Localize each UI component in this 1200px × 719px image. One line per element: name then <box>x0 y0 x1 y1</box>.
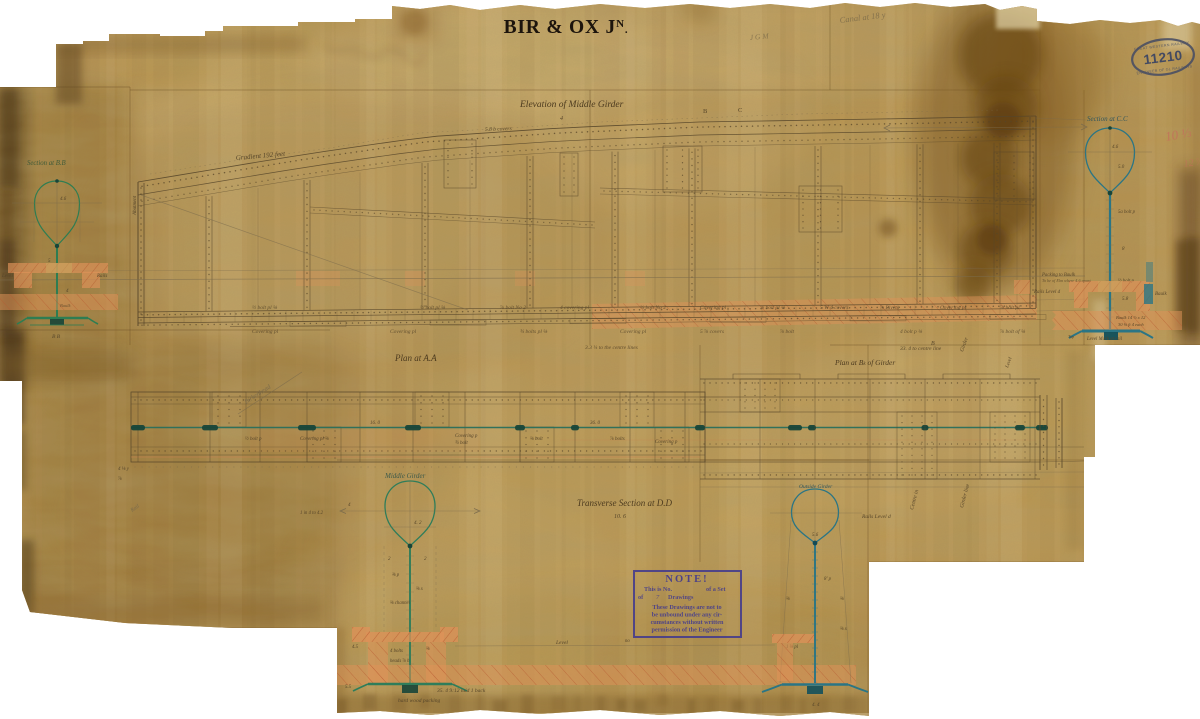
svg-text:16. 0: 16. 0 <box>370 421 381 426</box>
svg-text:4. 2: 4. 2 <box>414 521 422 526</box>
svg-text:5.8: 5.8 <box>1122 297 1129 302</box>
svg-text:4: 4 <box>560 115 563 122</box>
svg-text:5.0: 5.0 <box>1118 165 1125 170</box>
svg-text:½ bolt pl ⅝: ½ bolt pl ⅝ <box>420 304 445 311</box>
svg-text:Level: Level <box>555 640 568 646</box>
svg-text:Covering pl: Covering pl <box>940 305 967 311</box>
svg-text:J G Mat depotDrwg No 3: J G Mat depotDrwg No 3 <box>749 31 769 42</box>
svg-text:Baulk 14 ½ x 12: Baulk 14 ½ x 12 <box>1116 315 1146 320</box>
svg-text:12 ⅞: 12 ⅞ <box>1183 156 1200 170</box>
svg-text:⅜ p: ⅜ p <box>392 573 400 578</box>
svg-text:⅝ x: ⅝ x <box>840 627 848 632</box>
svg-text:Rails Level d: Rails Level d <box>861 514 891 520</box>
svg-text:Top: Top <box>1068 334 1074 339</box>
svg-text:4 bolts: 4 bolts <box>390 649 403 654</box>
svg-text:30 ⅜ ft 4 each: 30 ⅜ ft 4 each <box>1118 322 1144 327</box>
svg-text:⅞ bolts: ⅞ bolts <box>610 437 625 442</box>
svg-text:Baulk: Baulk <box>60 303 71 308</box>
svg-text:½ bolt No 2: ½ bolt No 2 <box>640 304 666 311</box>
svg-text:5.6: 5.6 <box>812 533 819 538</box>
svg-text:Covering pl: Covering pl <box>390 329 417 335</box>
svg-text:⅞: ⅞ <box>118 477 122 482</box>
svg-text:1 in 4 to 4.2: 1 in 4 to 4.2 <box>300 511 324 516</box>
svg-text:⅞ bolt of ⅝: ⅞ bolt of ⅝ <box>1000 328 1025 335</box>
svg-text:4 bolt p ⅛: 4 bolt p ⅛ <box>900 328 922 335</box>
svg-text:Elevation of Middle Girder: Elevation of Middle Girder <box>519 99 624 110</box>
svg-text:Level Mark at rail: Level Mark at rail <box>1086 337 1123 342</box>
svg-text:Covering p: Covering p <box>455 434 478 439</box>
svg-text:C: C <box>738 107 742 114</box>
svg-text:⅞ bolt pl ⅝: ⅞ bolt pl ⅝ <box>760 305 785 311</box>
svg-text:5 W 4 covers: 5 W 4 covers <box>820 304 849 311</box>
svg-text:heads ⅞ h: heads ⅞ h <box>390 659 410 664</box>
svg-text:36. 0: 36. 0 <box>590 421 601 426</box>
svg-text:be unbound under any cir-: be unbound under any cir- <box>652 612 723 619</box>
svg-text:4.6: 4.6 <box>60 197 67 202</box>
svg-text:¾ bolts pl ⅝: ¾ bolts pl ⅝ <box>520 329 547 335</box>
svg-text:B: B <box>703 108 708 115</box>
svg-text:3.3 ¼ to the centre lines: 3.3 ¼ to the centre lines <box>584 345 638 351</box>
svg-text:4.5: 4.5 <box>352 645 359 650</box>
svg-text:Abutment: Abutment <box>133 195 138 216</box>
svg-text:35. 4 9:12 laid 1 back: 35. 4 9:12 laid 1 back <box>436 687 486 694</box>
svg-text:NOTE!: NOTE! <box>665 574 708 585</box>
svg-text:4.6: 4.6 <box>1112 145 1119 150</box>
svg-text:⅝ channel: ⅝ channel <box>390 601 411 606</box>
svg-text:⅝ bolt: ⅝ bolt <box>530 437 543 442</box>
svg-text:4 ⅛ y: 4 ⅛ y <box>118 467 130 472</box>
svg-text:Drawings: Drawings <box>668 594 694 601</box>
svg-text:cumstances without written: cumstances without written <box>651 619 724 626</box>
svg-text:33. 4 to centre line: 33. 4 to centre line <box>899 345 942 352</box>
svg-text:Middle Girder: Middle Girder <box>384 472 426 480</box>
svg-text:Covering pl: Covering pl <box>700 305 727 311</box>
svg-text:⅝: ⅝ <box>840 597 844 602</box>
svg-text:¾ bolt: ¾ bolt <box>455 441 468 446</box>
svg-text:Section at B.B: Section at B.B <box>27 160 66 167</box>
svg-text:5.8 b covers: 5.8 b covers <box>485 126 512 133</box>
svg-text:⅝: ⅝ <box>426 647 430 652</box>
svg-text:Rails: Rails <box>96 274 107 279</box>
svg-text:4. 4: 4. 4 <box>812 703 820 708</box>
svg-text:5 ⅞ covers: 5 ⅞ covers <box>700 329 724 335</box>
svg-text:Rails Level d: Rails Level d <box>1033 290 1061 295</box>
svg-text:hard wood packing: hard wood packing <box>398 698 441 704</box>
svg-text:Covering p: Covering p <box>655 440 678 445</box>
svg-text:⅞ bolt pl: ⅞ bolt pl <box>1000 305 1020 311</box>
svg-text:⅞ bolt No 2: ⅞ bolt No 2 <box>500 305 526 311</box>
svg-text:5a bolt p: 5a bolt p <box>1118 210 1136 215</box>
svg-text:Transverse Section at D.D: Transverse Section at D.D <box>577 498 672 508</box>
svg-text:B B: B B <box>52 334 61 340</box>
svg-text:8' p: 8' p <box>824 577 832 582</box>
svg-text:permission of the Engineer: permission of the Engineer <box>652 627 723 634</box>
svg-text:5.5: 5.5 <box>345 685 352 690</box>
svg-text:Covering pl ⅝: Covering pl ⅝ <box>300 437 329 442</box>
svg-text:⅝ x: ⅝ x <box>416 587 424 592</box>
svg-text:Section at C.C: Section at C.C <box>1087 115 1128 123</box>
svg-text:⅝: ⅝ <box>786 597 790 602</box>
svg-text:no: no <box>625 639 630 644</box>
svg-text:Plan at Bk of Girder: Plan at Bk of Girder <box>834 358 895 367</box>
svg-text:Covering pl: Covering pl <box>620 329 647 335</box>
svg-text:Level: Level <box>1 274 13 279</box>
svg-text:½ bolt p: ½ bolt p <box>245 437 262 442</box>
svg-text:4 covering pl: 4 covering pl <box>560 304 589 311</box>
svg-text:of a Set: of a Set <box>706 586 727 593</box>
svg-text:This is No.: This is No. <box>644 586 672 593</box>
svg-text:⅞ bolt: ⅞ bolt <box>780 329 795 335</box>
svg-text:BIR & OX JN.: BIR & OX JN. <box>504 17 629 38</box>
svg-text:Covering pl: Covering pl <box>252 329 279 335</box>
svg-text:⅞ Rivets: ⅞ Rivets <box>880 305 899 311</box>
svg-text:Plan at A.A: Plan at A.A <box>394 353 437 363</box>
svg-text:To be of Elm where 4.6 apart: To be of Elm where 4.6 apart <box>1042 278 1091 283</box>
svg-text:These Drawings are not to: These Drawings are not to <box>652 604 721 611</box>
svg-text:10. 6: 10. 6 <box>614 514 626 520</box>
svg-text:½ bolt pl ⅝: ½ bolt pl ⅝ <box>252 304 277 311</box>
svg-text:Baulk: Baulk <box>1155 292 1167 297</box>
